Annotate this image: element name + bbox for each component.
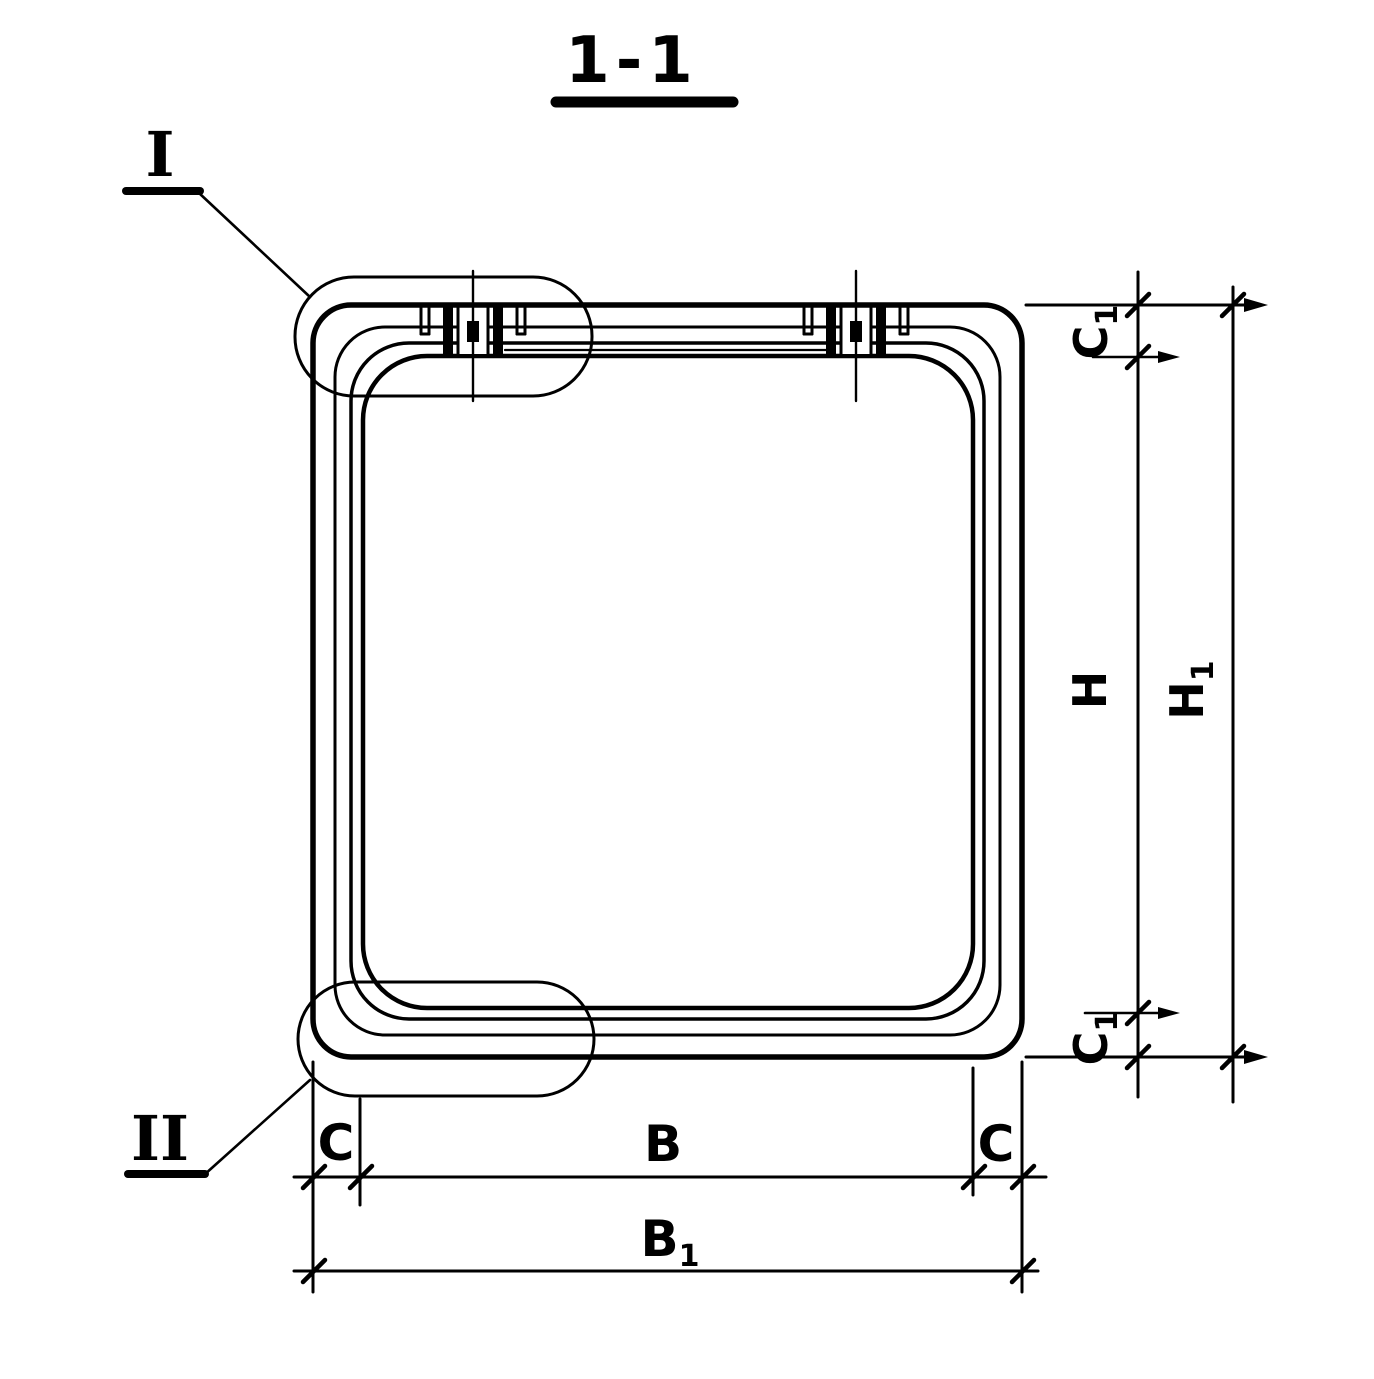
dim-label-main: B	[641, 1210, 679, 1268]
dim-label-C-left: C	[318, 1114, 355, 1172]
detail-I-label: I	[145, 118, 174, 191]
dim-label-sub: 1	[679, 1239, 700, 1274]
dim-label-sub: 1	[1186, 660, 1221, 681]
dim-label-main: C	[978, 1115, 1015, 1173]
dim-label-main: B	[644, 1115, 682, 1173]
joint-bar	[493, 307, 503, 355]
dim-label-main: H	[1160, 681, 1214, 720]
dim-label-main: C	[1064, 1032, 1118, 1066]
detail-II-label: II	[131, 1102, 189, 1175]
dim-label-main: H	[1063, 671, 1117, 710]
dim-label-main: C	[318, 1114, 355, 1172]
joint-bar	[443, 307, 453, 355]
dim-label-main: C	[1064, 326, 1118, 360]
drawing-sheet: 1-1	[0, 0, 1374, 1379]
joint-bar	[826, 307, 836, 355]
dim-label-B: B	[644, 1115, 682, 1173]
dim-label-C-right: C	[978, 1115, 1015, 1173]
section-drawing: 1-1	[0, 0, 1374, 1379]
dim-label-sub: 1	[1090, 305, 1125, 326]
dim-label-H: H	[1063, 671, 1117, 710]
dim-label-sub: 1	[1090, 1011, 1125, 1032]
section-title: 1-1	[565, 24, 699, 98]
joint-bar	[876, 307, 886, 355]
